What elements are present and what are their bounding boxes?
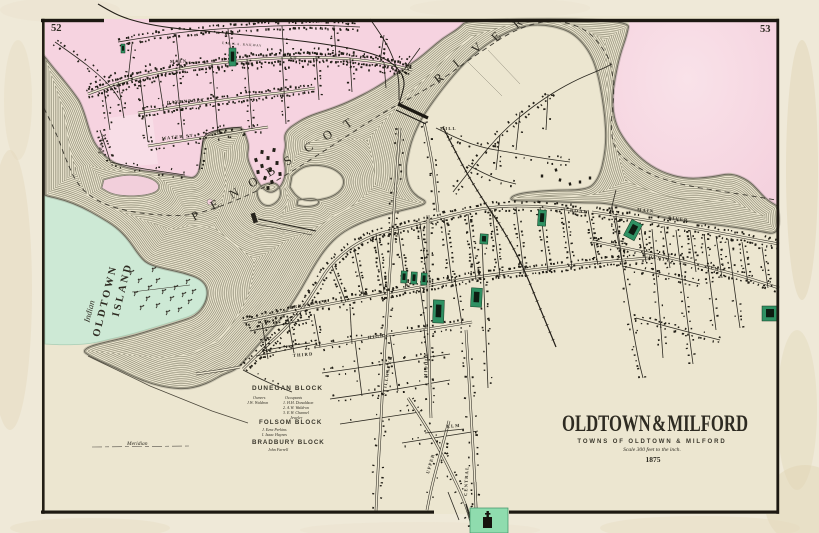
svg-text:52: 52	[51, 23, 62, 34]
svg-text:Meridian: Meridian	[126, 441, 148, 447]
svg-text:FOLSOM BLOCK: FOLSOM BLOCK	[259, 419, 322, 426]
svg-text:OLDTOWN & MILFORD: OLDTOWN & MILFORD	[562, 411, 748, 436]
svg-text:BRADBURY BLOCK: BRADBURY BLOCK	[252, 439, 325, 446]
svg-text:I. Isaac Haynes: I. Isaac Haynes	[261, 432, 287, 437]
svg-text:ST: ST	[290, 56, 298, 61]
svg-text:J.W. Waldron: J.W. Waldron	[247, 400, 268, 405]
svg-text:MAIN: MAIN	[170, 58, 187, 64]
svg-text:MILL: MILL	[440, 126, 457, 131]
svg-text:DUNEGAN BLOCK: DUNEGAN BLOCK	[252, 385, 323, 392]
svg-text:TOWNS OF OLDTOWN & MILFORD: TOWNS OF OLDTOWN & MILFORD	[577, 439, 726, 445]
svg-text:53: 53	[760, 24, 771, 35]
svg-text:1875: 1875	[646, 455, 661, 464]
svg-text:John Farrell: John Farrell	[268, 447, 289, 452]
svg-text:Scale 300 feet to the inch.: Scale 300 feet to the inch.	[623, 446, 681, 453]
